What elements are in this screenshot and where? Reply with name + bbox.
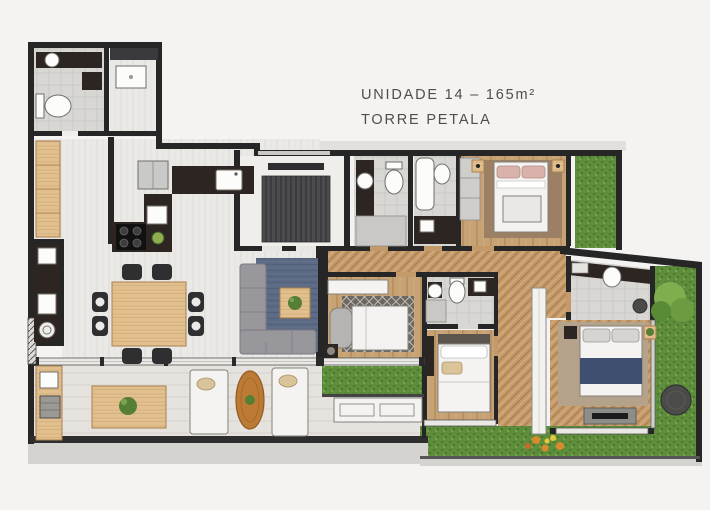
bedroom-2-shelf bbox=[328, 280, 388, 294]
toilet-tank bbox=[36, 94, 44, 118]
garden-slab-edge bbox=[420, 458, 702, 466]
laundry-appliance bbox=[38, 294, 56, 314]
planter-bedroom-2 bbox=[322, 366, 424, 396]
sofa-chaise bbox=[240, 330, 316, 354]
bathroom-1-shower bbox=[356, 216, 406, 246]
tower-subtitle: TORRE PETALA bbox=[361, 112, 492, 128]
grill-sink bbox=[40, 372, 58, 388]
bed-3-headboard bbox=[438, 334, 490, 344]
service-room-floor bbox=[110, 48, 158, 137]
master-bath-stool bbox=[633, 299, 647, 313]
master-nightstand-left bbox=[564, 326, 577, 339]
coffee-table-plant bbox=[288, 296, 302, 310]
planter-bench bbox=[334, 398, 422, 422]
pillow bbox=[583, 329, 610, 342]
sofa-vertical bbox=[240, 264, 266, 336]
bathroom-3-sink bbox=[428, 284, 442, 298]
oven bbox=[147, 206, 167, 224]
prep-sink bbox=[152, 232, 164, 244]
bedroom-3-window bbox=[424, 420, 496, 426]
garden-planter-top-right bbox=[575, 156, 617, 248]
den-window bbox=[258, 151, 330, 155]
kitchen-sink bbox=[216, 170, 242, 190]
den-cabinet bbox=[262, 176, 330, 242]
laundry-area bbox=[34, 244, 60, 342]
pillow bbox=[497, 166, 520, 178]
grill bbox=[40, 396, 60, 418]
master-bed-throw bbox=[580, 358, 642, 384]
laundry-sink bbox=[38, 248, 56, 264]
towel-1 bbox=[197, 378, 215, 390]
round-sink bbox=[45, 53, 59, 67]
bed-3-throw bbox=[442, 362, 462, 374]
living-room bbox=[240, 258, 318, 354]
bathroom-3-toilet bbox=[449, 281, 465, 303]
dining-table bbox=[112, 282, 186, 346]
pillow bbox=[522, 166, 545, 178]
bathroom-1-sink bbox=[357, 173, 373, 189]
towel-2 bbox=[279, 375, 297, 387]
master-bath-sink bbox=[603, 267, 621, 287]
cooktop bbox=[116, 224, 146, 250]
oval-table-plant bbox=[245, 395, 255, 405]
bathroom-2-sink bbox=[434, 164, 450, 184]
terrace-slab-edge bbox=[28, 442, 428, 464]
terrace-plant bbox=[119, 397, 137, 415]
pillow bbox=[441, 346, 487, 358]
toilet bbox=[45, 95, 71, 117]
bedroom-3-tv-unit bbox=[426, 336, 434, 376]
floor-plan-drawing bbox=[0, 0, 710, 510]
bathroom-1-toilet bbox=[385, 170, 403, 194]
bathroom-3-shower bbox=[426, 300, 446, 322]
bed-2-headboard-pillow bbox=[330, 308, 352, 348]
den-console bbox=[268, 163, 324, 170]
floor-plan-image: UNIDADE 14 – 165m² TORRE PETALA bbox=[0, 0, 710, 510]
bathroom-2-tub bbox=[416, 158, 434, 210]
bed-2 bbox=[352, 306, 408, 350]
washer bbox=[39, 322, 55, 338]
service-room-shelf bbox=[110, 48, 158, 60]
master-bedroom-window bbox=[556, 428, 648, 434]
service-bath-shelf bbox=[82, 72, 102, 90]
bed-1-ottoman bbox=[503, 196, 541, 222]
garden-round-table bbox=[661, 385, 691, 415]
unit-title: UNIDADE 14 – 165m² bbox=[361, 87, 536, 103]
pillow bbox=[612, 329, 639, 342]
master-tv bbox=[592, 413, 628, 419]
